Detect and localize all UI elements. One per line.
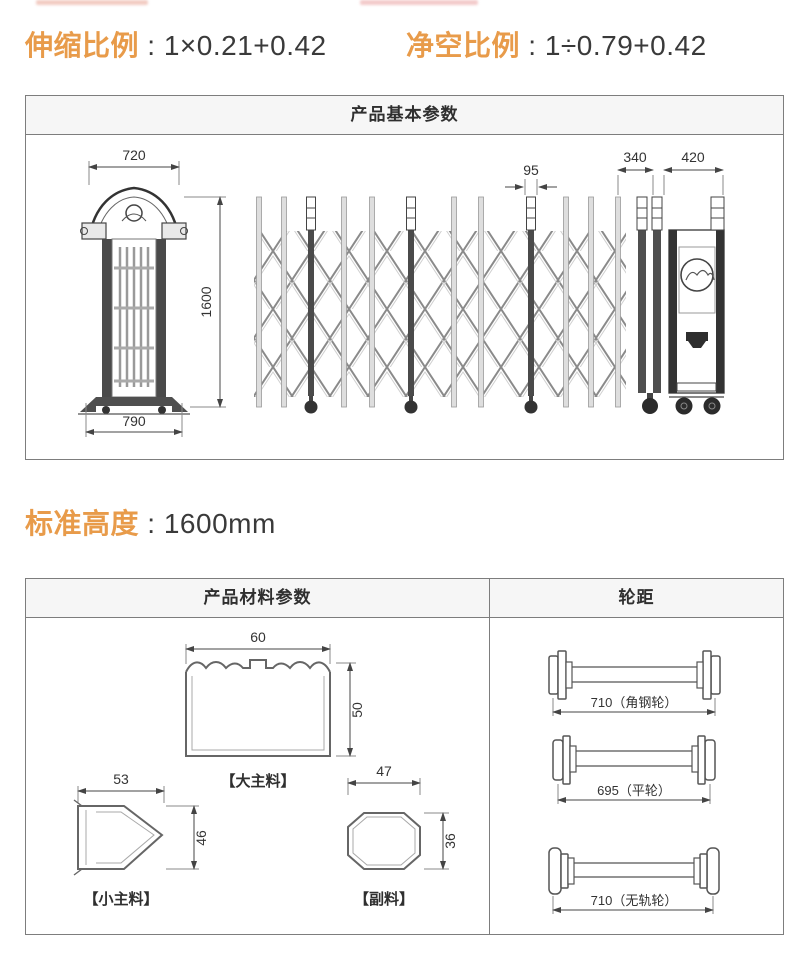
material-profiles-drawing: 60 50 【大主料】 [26, 618, 489, 935]
wheel-track-column: 轮距 [490, 579, 783, 934]
basic-params-panel: 产品基本参数 [25, 95, 784, 460]
svg-text:【副料】: 【副料】 [354, 890, 414, 908]
standard-height-spec: 标准高度 : 1600mm [25, 502, 276, 542]
axle-flat: 695（平轮） [553, 736, 715, 804]
svg-text:50: 50 [349, 702, 365, 718]
basic-params-title: 产品基本参数 [26, 96, 783, 135]
cropped-text-remnant-right [360, 0, 478, 5]
svg-text:710（无轨轮）: 710（无轨轮） [591, 893, 678, 908]
svg-text:1600: 1600 [198, 286, 214, 317]
clearance-ratio-spec: 净空比例 : 1÷0.79+0.42 [406, 24, 707, 64]
gate-post-front-view [78, 188, 190, 414]
svg-text:695（平轮）: 695（平轮） [597, 783, 671, 798]
standard-height-value: 1600mm [164, 508, 276, 539]
dim-height: 1600 [184, 197, 226, 407]
wheel-track-title: 轮距 [490, 579, 783, 618]
svg-text:710（角钢轮）: 710（角钢轮） [591, 695, 678, 710]
dim-front-top: 720 [89, 147, 179, 185]
svg-text:47: 47 [376, 763, 392, 779]
cropped-text-remnant-left [36, 0, 148, 5]
axle-trackless: 710（无轨轮） [549, 848, 719, 914]
svg-text:340: 340 [623, 149, 647, 165]
basic-params-drawing: 720 790 1600 [26, 135, 783, 460]
wheel-track-drawing: 710（角钢轮） 69 [490, 618, 782, 935]
spec-sheet: 伸缩比例 : 1×0.21+0.42 净空比例 : 1÷0.79+0.42 产品… [0, 0, 800, 957]
svg-text:【大主料】: 【大主料】 [220, 772, 295, 790]
extension-ratio-label: 伸缩比例 [25, 30, 139, 61]
svg-text:95: 95 [523, 162, 539, 178]
svg-text:720: 720 [122, 147, 146, 163]
svg-text:420: 420 [681, 149, 705, 165]
clearance-ratio-value: 1÷0.79+0.42 [545, 30, 707, 61]
profile-large-main: 60 50 【大主料】 [186, 629, 365, 790]
dim-head: 420 [664, 149, 723, 195]
extension-ratio-spec: 伸缩比例 : 1×0.21+0.42 [25, 24, 327, 64]
svg-text:53: 53 [113, 771, 129, 787]
standard-height-label: 标准高度 [25, 508, 139, 539]
extension-ratio-value: 1×0.21+0.42 [164, 30, 327, 61]
lower-panel: 产品材料参数 60 [25, 578, 784, 935]
dim-tail: 340 [618, 149, 653, 195]
profile-aux: 47 36 【副料】 [348, 763, 458, 908]
svg-text:790: 790 [122, 413, 146, 429]
svg-text:【小主料】: 【小主料】 [83, 890, 158, 908]
svg-text:36: 36 [442, 833, 458, 849]
dim-front-bottom: 790 [86, 403, 182, 437]
lattice-gate-view [254, 197, 626, 414]
motor-unit-view [637, 197, 724, 415]
material-params-column: 产品材料参数 60 [26, 579, 490, 934]
clearance-ratio-label: 净空比例 [406, 30, 520, 61]
svg-text:46: 46 [193, 830, 209, 846]
material-params-title: 产品材料参数 [26, 579, 489, 618]
axle-angle-steel: 710（角钢轮） [549, 651, 720, 716]
profile-small-main: 53 46 【小主料】 [74, 771, 209, 908]
svg-text:60: 60 [250, 629, 266, 645]
dim-pole: 95 [505, 162, 557, 195]
